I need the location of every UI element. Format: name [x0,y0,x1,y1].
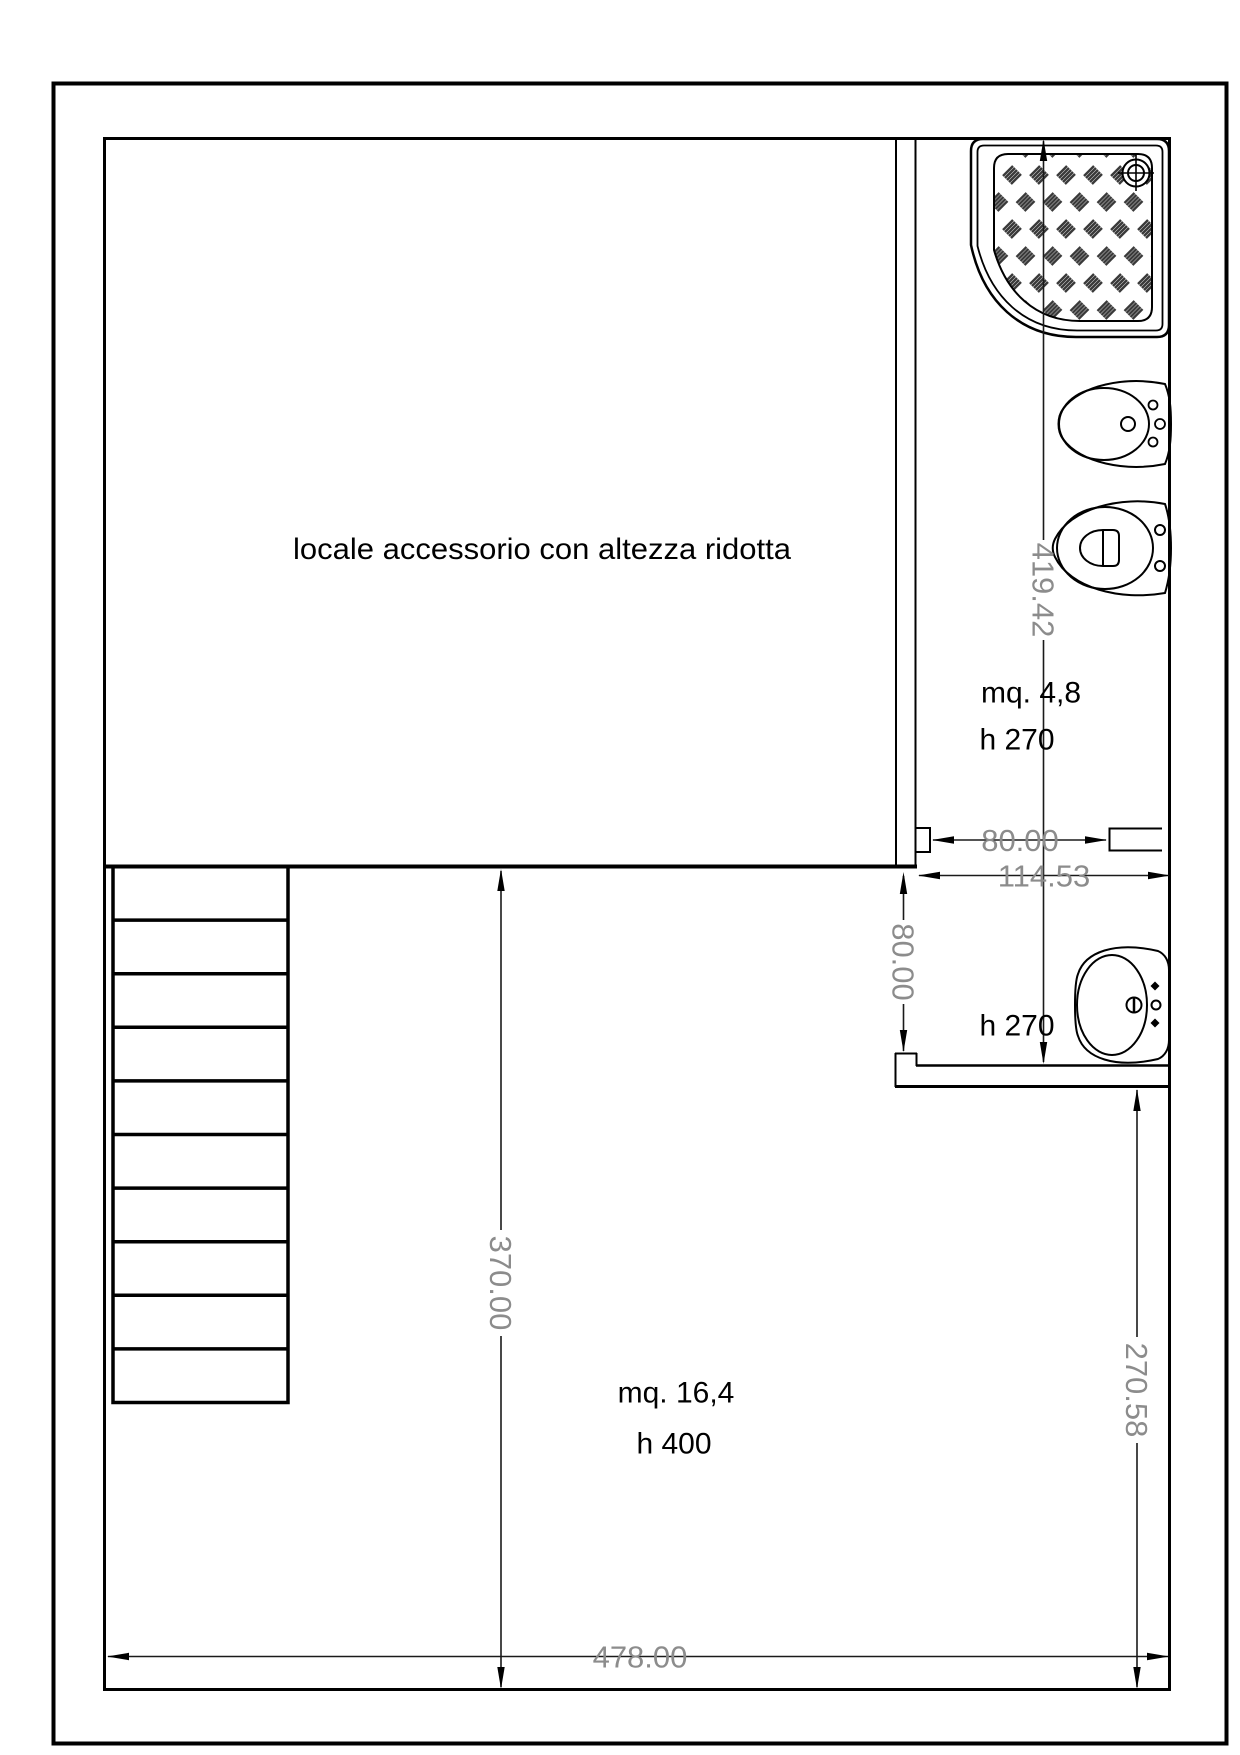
dim-text-bath-width: 114.53 [998,859,1091,894]
arrow-up-icon [900,872,907,894]
vestibule-height-label: h 270 [979,1010,1054,1043]
washbasin-outline [1075,947,1169,1062]
arrow-up-icon [497,869,504,891]
bidet-hole [1149,438,1158,447]
bidet-drain [1121,417,1135,431]
arrow-left-icon [932,836,954,843]
drawing-sheet: 419.42 80.00 114.53 80.00 370.00 270.58 … [0,0,1240,1755]
toilet-hinge [1155,561,1165,571]
bath-height-label: h 270 [979,724,1054,757]
arrow-up-icon [1133,1089,1140,1111]
door-jamb-right [1110,829,1163,851]
bidet-hole [1155,419,1165,429]
dim-text-lower-room-depth: 370.00 [483,1236,518,1331]
washbasin-faucet-icon [1127,998,1142,1013]
dim-text-right-side-depth: 270.58 [1119,1343,1154,1438]
lower-room-height-label: h 400 [636,1428,711,1461]
page-border [54,84,1227,1744]
bidet [1059,381,1172,467]
upper-room-label: locale accessorio con altezza ridotta [293,533,791,566]
dim-text-passage-width: 80.00 [886,923,921,1001]
dim-text-bath-depth: 419.42 [1026,543,1061,638]
dim-text-total-width: 478.00 [593,1640,688,1675]
door-jamb-left [916,828,931,852]
toilet [1053,501,1171,595]
arrow-down-icon [1040,1042,1047,1064]
arrow-right-icon [1148,872,1170,879]
bidet-hole [1149,401,1158,410]
toilet-hinge [1155,525,1165,535]
washbasin-hole [1152,1001,1161,1010]
arrow-up-icon [1040,139,1047,161]
arrow-down-icon [900,1030,907,1052]
arrow-left-icon [107,1653,129,1660]
arrow-right-icon [1085,836,1107,843]
arrow-down-icon [1133,1667,1140,1689]
shower-tray [971,139,1169,337]
arrow-down-icon [497,1667,504,1689]
washbasin-hole [1151,982,1160,991]
toilet-seat-detail [1080,530,1119,566]
arrow-left-icon [918,872,940,879]
floor-plan-svg: 419.42 80.00 114.53 80.00 370.00 270.58 … [0,0,1240,1755]
arrow-right-icon [1147,1653,1169,1660]
washbasin-bowl [1077,955,1147,1055]
washbasin-hole [1151,1019,1160,1028]
toilet-bowl [1057,507,1153,589]
stairs [113,867,288,1403]
lower-room-area-label: mq. 16,4 [618,1377,735,1410]
dim-text-door-width: 80.00 [981,823,1059,858]
washbasin [1075,947,1169,1062]
bath-area-label: mq. 4,8 [981,677,1081,710]
